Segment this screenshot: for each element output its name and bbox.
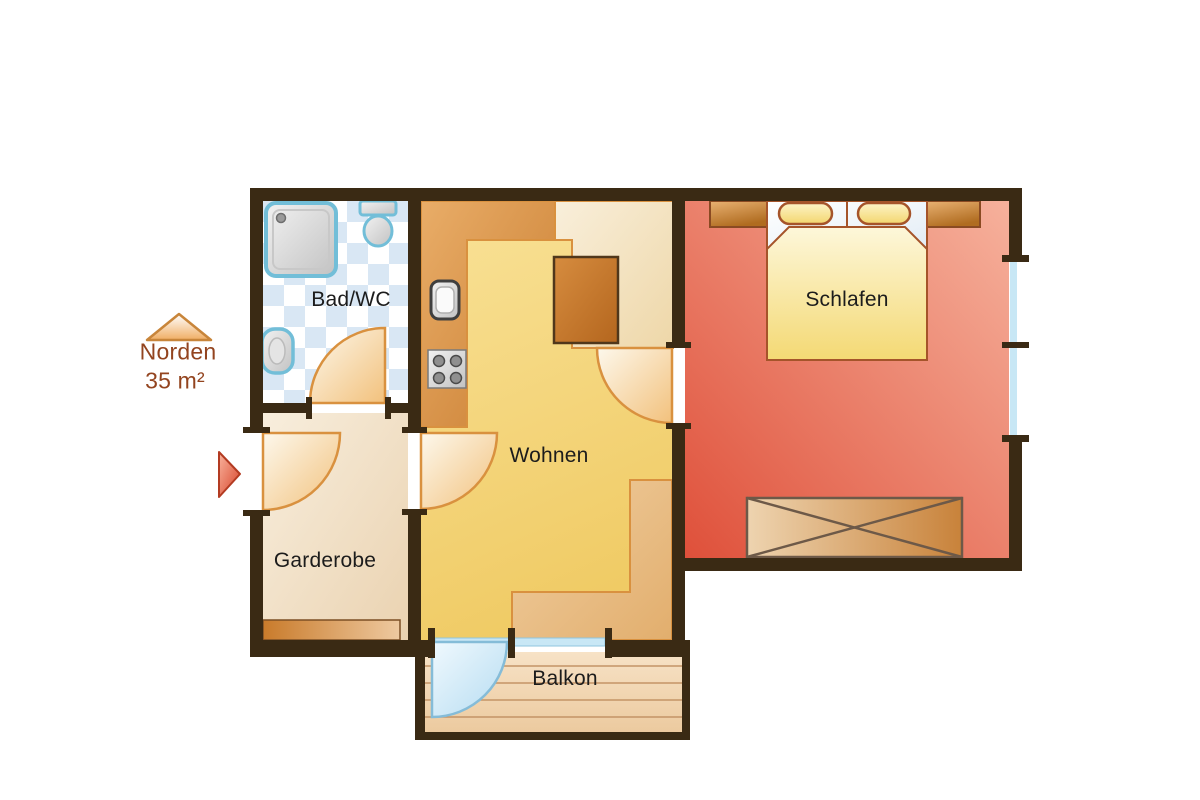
shower xyxy=(266,203,336,276)
room-label-wohnen: Wohnen xyxy=(509,444,588,468)
room-label-bad-wc: Bad/WC xyxy=(311,288,390,312)
wall-bath-bottom-left xyxy=(263,403,312,413)
balcony-door-post-right xyxy=(605,628,612,658)
wall-top xyxy=(250,188,1022,201)
floorplan-svg xyxy=(0,0,1200,800)
stove xyxy=(428,350,466,388)
balcony-wall-left xyxy=(415,650,425,740)
kitchen-sink xyxy=(431,281,459,319)
nightstand-right xyxy=(927,201,980,227)
balcony-door-post-middle xyxy=(508,628,515,658)
balcony-door-post-left xyxy=(428,628,435,658)
room-label-balkon: Balkon xyxy=(532,667,597,691)
shower-drain xyxy=(277,214,286,223)
wall-right-lower xyxy=(1009,442,1022,571)
room-label-garderobe: Garderobe xyxy=(274,549,376,573)
wall-left-upper xyxy=(250,188,263,433)
pillow-left xyxy=(779,203,832,224)
bedroom-window-glass xyxy=(1010,262,1017,435)
north-arrow-icon xyxy=(147,314,211,340)
window-mullion xyxy=(1002,342,1029,348)
area-label: 35 m² xyxy=(145,368,205,395)
pillow-right xyxy=(858,203,910,224)
nightstand-left xyxy=(710,201,767,227)
north-label: Norden xyxy=(140,339,217,366)
room-label-schlafen: Schlafen xyxy=(805,288,888,312)
floorplan-canvas: Bad/WC Wohnen Schlafen Garderobe Balkon … xyxy=(0,0,1200,800)
wall-left-lower xyxy=(250,516,263,657)
balcony-wall-bottom xyxy=(415,732,690,740)
wall-bedroom-bottom xyxy=(672,558,1022,571)
wall-bottom-left xyxy=(250,640,428,657)
wash-basin xyxy=(262,329,293,373)
entrance-arrow-icon xyxy=(219,452,240,497)
garderobe-shelf xyxy=(263,620,400,640)
wall-right-upper xyxy=(1009,188,1022,255)
dining-table xyxy=(554,257,618,343)
wall-bath-living xyxy=(408,188,421,427)
wall-garderobe-living xyxy=(408,515,421,657)
wall-living-bedroom-lower xyxy=(672,429,685,657)
double-bed xyxy=(767,201,927,360)
wardrobe xyxy=(747,498,962,557)
toilet xyxy=(360,201,396,246)
balcony-wall-right xyxy=(682,650,690,740)
living-room-floor xyxy=(421,201,673,644)
wall-living-bedroom-upper xyxy=(672,188,685,342)
